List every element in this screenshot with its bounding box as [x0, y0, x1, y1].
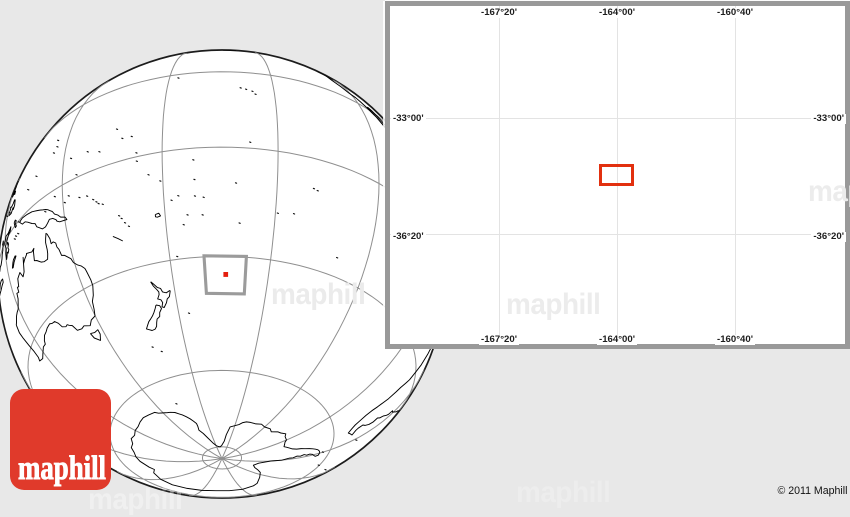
svg-text:maphill: maphill	[18, 450, 106, 487]
